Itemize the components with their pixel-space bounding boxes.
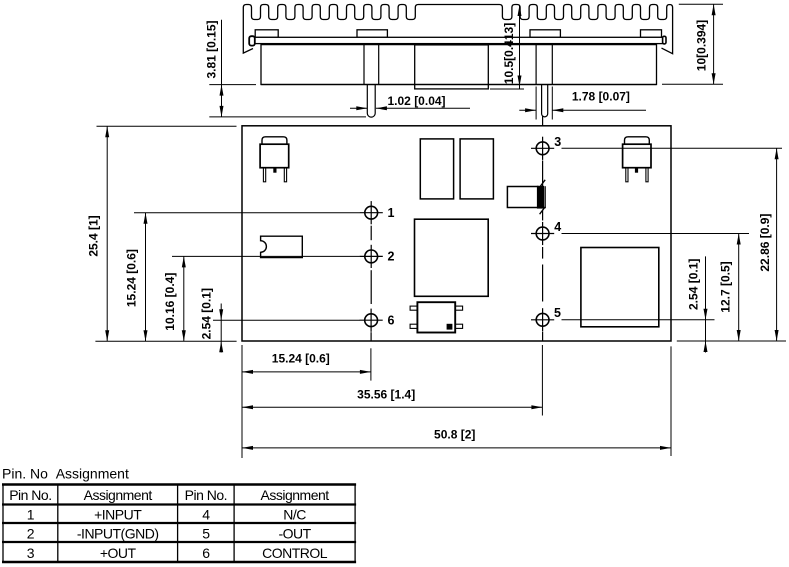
svg-text:3: 3 bbox=[554, 135, 561, 149]
svg-text:-OUT: -OUT bbox=[278, 526, 311, 542]
svg-text:35.56 [1.4]: 35.56 [1.4] bbox=[357, 388, 415, 402]
svg-text:1: 1 bbox=[27, 506, 35, 522]
svg-text:2: 2 bbox=[27, 526, 35, 542]
svg-text:10.16 [0.4]: 10.16 [0.4] bbox=[163, 273, 177, 331]
svg-text:3: 3 bbox=[27, 545, 35, 561]
svg-text:3.81 [0.15]: 3.81 [0.15] bbox=[205, 20, 219, 78]
svg-text:+OUT: +OUT bbox=[100, 545, 137, 561]
svg-text:50.8 [2]: 50.8 [2] bbox=[434, 428, 475, 442]
svg-text:Assignment: Assignment bbox=[261, 487, 330, 503]
svg-text:-INPUT(GND): -INPUT(GND) bbox=[77, 526, 159, 542]
svg-text:Assignment: Assignment bbox=[84, 487, 153, 503]
svg-text:6: 6 bbox=[202, 545, 210, 561]
svg-text:2.54 [0.1]: 2.54 [0.1] bbox=[200, 288, 214, 339]
svg-text:5: 5 bbox=[554, 306, 561, 320]
svg-text:2: 2 bbox=[388, 250, 395, 264]
svg-text:N/C: N/C bbox=[283, 506, 306, 522]
svg-text:15.24 [0.6]: 15.24 [0.6] bbox=[125, 249, 139, 307]
svg-text:4: 4 bbox=[202, 506, 210, 522]
svg-text:4: 4 bbox=[554, 220, 561, 234]
svg-text:CONTROL: CONTROL bbox=[262, 545, 328, 561]
svg-text:6: 6 bbox=[388, 313, 395, 327]
svg-text:Pin No.: Pin No. bbox=[185, 487, 227, 503]
svg-text:1.78 [0.07]: 1.78 [0.07] bbox=[572, 90, 630, 104]
svg-text:25.4 [1]: 25.4 [1] bbox=[87, 215, 101, 256]
svg-text:15.24 [0.6]: 15.24 [0.6] bbox=[272, 352, 330, 366]
svg-text:Pin No.: Pin No. bbox=[9, 487, 51, 503]
svg-text:1: 1 bbox=[388, 206, 395, 220]
svg-text:22.86 [0.9]: 22.86 [0.9] bbox=[758, 214, 772, 272]
svg-text:1.02 [0.04]: 1.02 [0.04] bbox=[388, 94, 446, 108]
svg-text:2.54 [0.1]: 2.54 [0.1] bbox=[686, 259, 700, 310]
svg-text:10.5[0.413]: 10.5[0.413] bbox=[502, 23, 516, 84]
svg-text:12.7 [0.5]: 12.7 [0.5] bbox=[719, 261, 733, 312]
svg-text:5: 5 bbox=[202, 526, 210, 542]
svg-text:Pin. No Assignment: Pin. No Assignment bbox=[2, 466, 129, 482]
svg-text:+INPUT: +INPUT bbox=[94, 506, 142, 522]
svg-text:10[0.394]: 10[0.394] bbox=[695, 20, 709, 71]
